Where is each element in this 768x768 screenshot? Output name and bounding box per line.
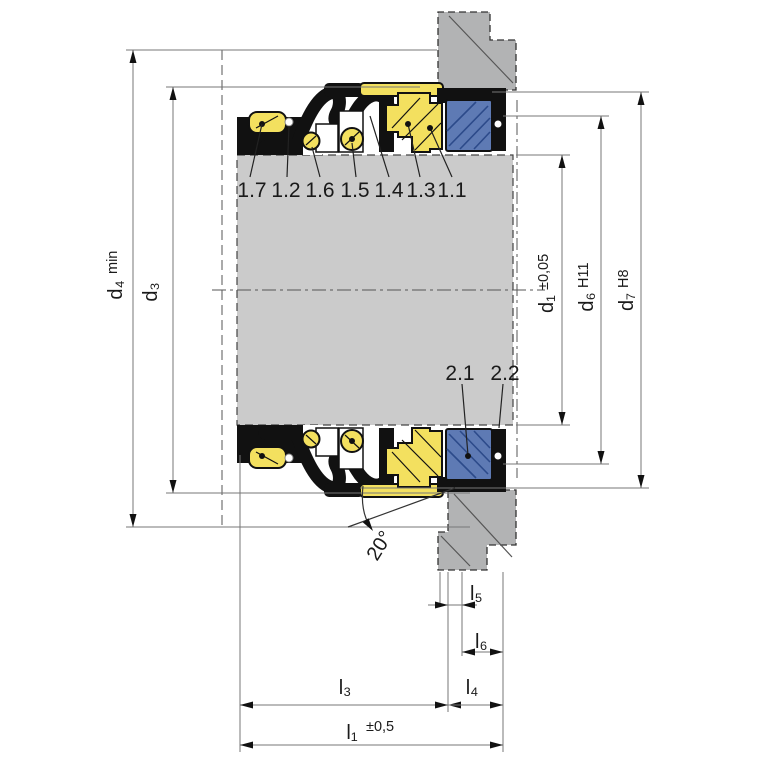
svg-text:d₇: d₇ [616,293,638,311]
dimension-l4 [448,702,503,709]
callout-1-2: 1.2 [271,179,300,202]
callout-1-4: 1.4 [374,179,404,202]
pin [285,118,293,126]
svg-text:d₆: d₆ [576,292,598,311]
svg-text:d₃: d₃ [140,282,162,301]
label-l1: l₁ ±0,5 [346,719,394,744]
callout-1-3: 1.3 [406,179,435,202]
svg-text:±0,05: ±0,05 [536,254,552,290]
dimension-d4 [130,50,137,527]
dimension-d6 [598,116,605,464]
mechanical-seal-section-drawing: 20° 1.7 1.2 1.6 1.5 1.4 1.3 1.1 2.1 2.2 … [0,0,768,768]
rotating-unit-callouts: 1.7 1.2 1.6 1.5 1.4 1.3 1.1 [237,179,466,202]
callout-2-1: 2.1 [445,362,474,385]
callout-1-6: 1.6 [305,179,334,202]
callout-1-1: 1.1 [437,179,466,202]
label-l6: l₆ [475,631,488,653]
label-l4: l₄ [466,677,479,699]
dimension-l1 [240,742,503,749]
dimension-d1 [559,155,566,425]
callout-2-2: 2.2 [490,362,519,385]
label-d3: d₃ [140,282,162,301]
housing-bottom [438,490,516,570]
svg-text:l₁: l₁ [346,722,357,744]
boot-bead [495,121,502,128]
svg-text:min: min [105,251,121,274]
seal-face [386,93,442,152]
bellows-crest [324,83,364,97]
housing-top [438,12,516,90]
svg-text:H8: H8 [616,269,632,288]
technical-drawing-canvas: 20° 1.7 1.2 1.6 1.5 1.4 1.3 1.1 2.1 2.2 … [0,0,768,768]
label-d6: d₆ H11 [576,262,598,311]
label-l5: l₅ [470,583,483,605]
seal-unit-mirror [237,425,506,497]
dimension-d7 [638,92,645,488]
label-d7: d₇ H8 [616,269,638,311]
callout-1-5: 1.5 [340,179,369,202]
dimension-l3 [240,702,448,709]
svg-text:H11: H11 [576,262,592,288]
angle-label: 20° [363,527,398,564]
label-l3: l₃ [339,677,352,699]
label-d4: d₄ min [105,251,127,300]
callout-1-7: 1.7 [237,179,266,202]
svg-text:d₄: d₄ [105,280,127,299]
svg-text:±0,5: ±0,5 [366,719,394,735]
dimension-d3 [170,87,177,493]
elastomer-pad [249,112,286,133]
svg-text:d₁: d₁ [536,295,558,313]
label-d1: d₁ ±0,05 [536,254,558,313]
